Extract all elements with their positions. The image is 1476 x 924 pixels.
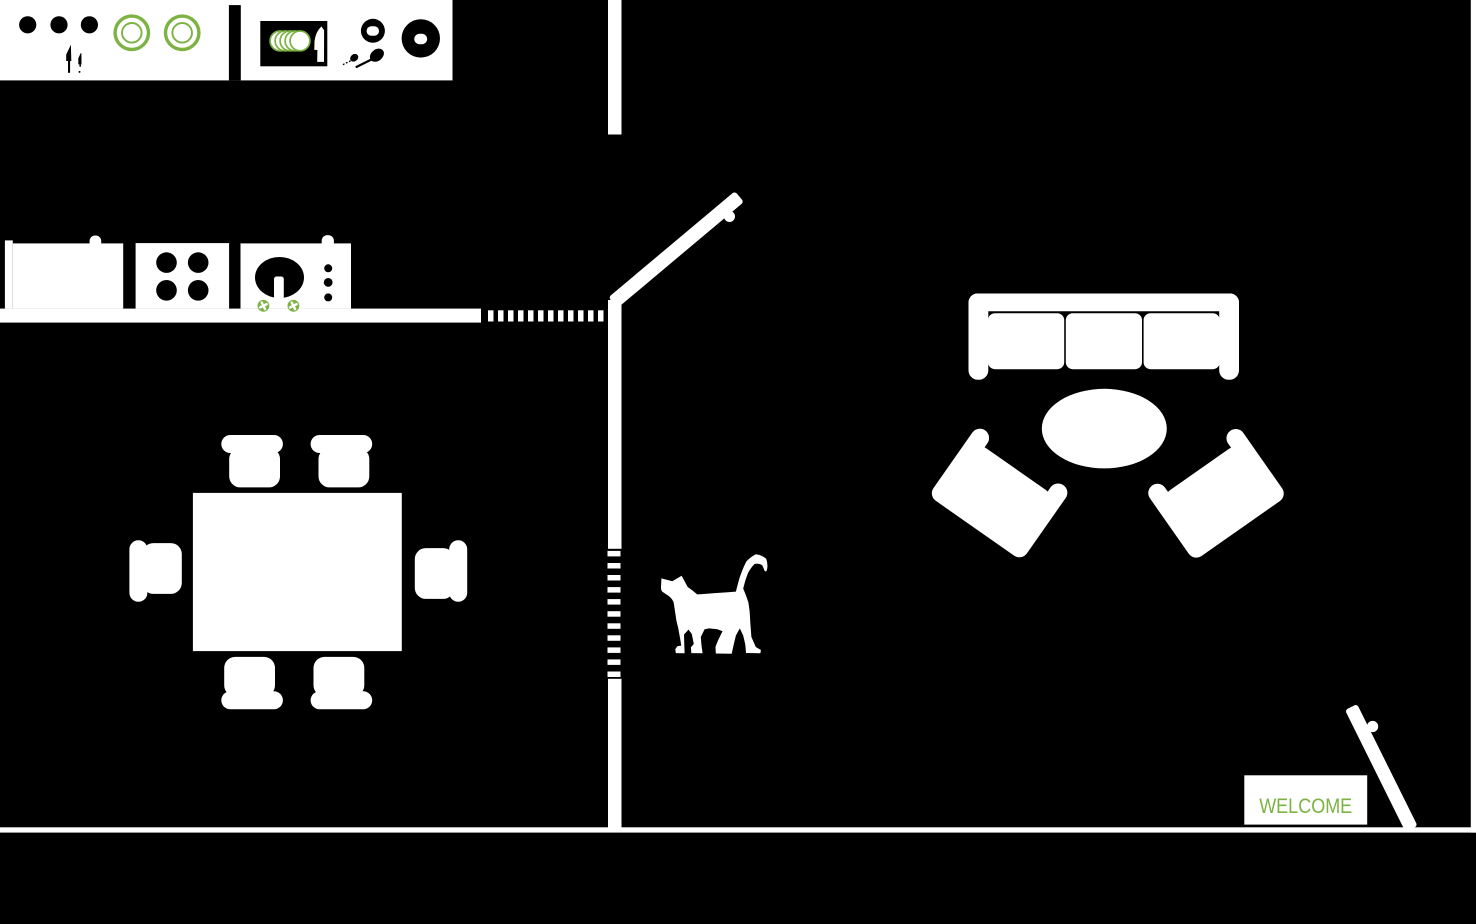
svg-text:WELCOME: WELCOME	[1259, 794, 1352, 818]
